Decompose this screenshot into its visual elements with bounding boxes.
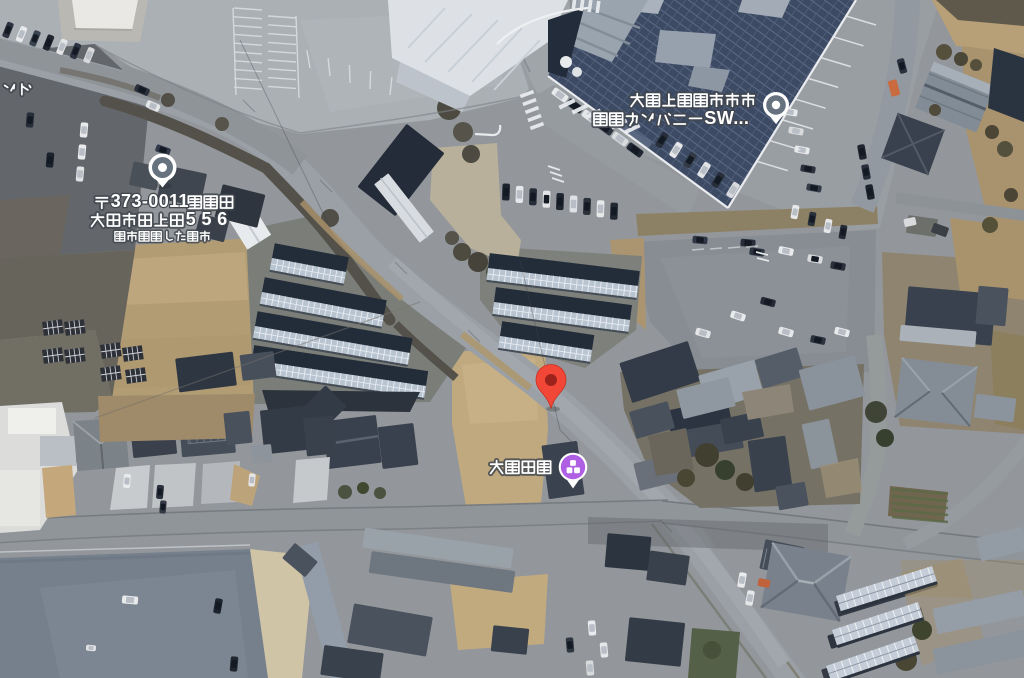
svg-text:SW...: SW... [704,108,749,128]
svg-text:373-0011: 373-0011 [111,191,189,211]
svg-text:5 5 6: 5 5 6 [186,209,228,229]
